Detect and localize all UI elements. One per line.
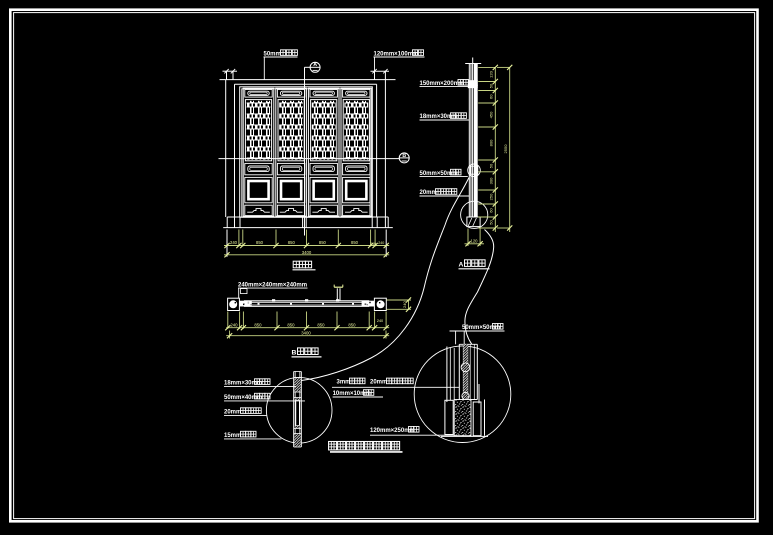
svg-text:850: 850	[256, 240, 264, 245]
svg-text:850: 850	[317, 322, 325, 327]
svg-text:300: 300	[489, 177, 494, 184]
svg-text:120: 120	[471, 239, 479, 244]
svg-text:50mm×50mm: 50mm×50mm	[420, 171, 458, 177]
svg-text:50mm×40mm: 50mm×40mm	[224, 395, 262, 401]
svg-text:50mm×50mm: 50mm×50mm	[462, 325, 500, 331]
svg-text:A: A	[313, 62, 317, 68]
svg-text:240: 240	[377, 319, 383, 323]
svg-text:240mm×240mm×240mm: 240mm×240mm×240mm	[238, 282, 307, 288]
svg-text:50: 50	[489, 163, 494, 168]
svg-text:240: 240	[402, 300, 407, 307]
svg-text:3400: 3400	[301, 330, 311, 335]
svg-text:A: A	[459, 262, 464, 269]
svg-text:240: 240	[378, 241, 384, 245]
svg-text:120mm×100mm: 120mm×100mm	[374, 51, 419, 57]
svg-text:850: 850	[288, 240, 296, 245]
svg-text:240: 240	[370, 242, 376, 246]
svg-text:60: 60	[489, 94, 494, 99]
svg-text:800: 800	[489, 139, 494, 146]
svg-text:B: B	[292, 350, 297, 357]
svg-text:240: 240	[230, 240, 238, 245]
svg-text:50: 50	[489, 83, 494, 88]
svg-text:18mm×30mm: 18mm×30mm	[224, 380, 262, 386]
svg-text:20mm: 20mm	[420, 190, 437, 196]
svg-text:18mm×30mm: 18mm×30mm	[420, 114, 458, 120]
svg-text:850: 850	[254, 322, 262, 327]
svg-text:850: 850	[319, 240, 327, 245]
svg-text:20mm: 20mm	[370, 380, 387, 386]
svg-text:850: 850	[348, 322, 356, 327]
svg-text:850: 850	[287, 322, 295, 327]
svg-text:120: 120	[489, 70, 494, 77]
svg-text:20mm: 20mm	[224, 409, 241, 415]
svg-text:3mm: 3mm	[337, 380, 351, 386]
svg-text:240: 240	[230, 322, 238, 327]
svg-text:60: 60	[489, 208, 494, 213]
svg-text:50: 50	[489, 220, 494, 225]
svg-text:15mm: 15mm	[224, 433, 241, 439]
svg-text:10mm×10mm: 10mm×10mm	[333, 391, 371, 397]
svg-text:B: B	[402, 153, 406, 159]
svg-text:450: 450	[489, 111, 494, 118]
svg-text:2550: 2550	[503, 144, 508, 154]
svg-text:50mm: 50mm	[264, 51, 281, 57]
svg-text:850: 850	[351, 240, 359, 245]
svg-text:3400: 3400	[302, 250, 312, 255]
svg-text:250: 250	[489, 193, 494, 200]
